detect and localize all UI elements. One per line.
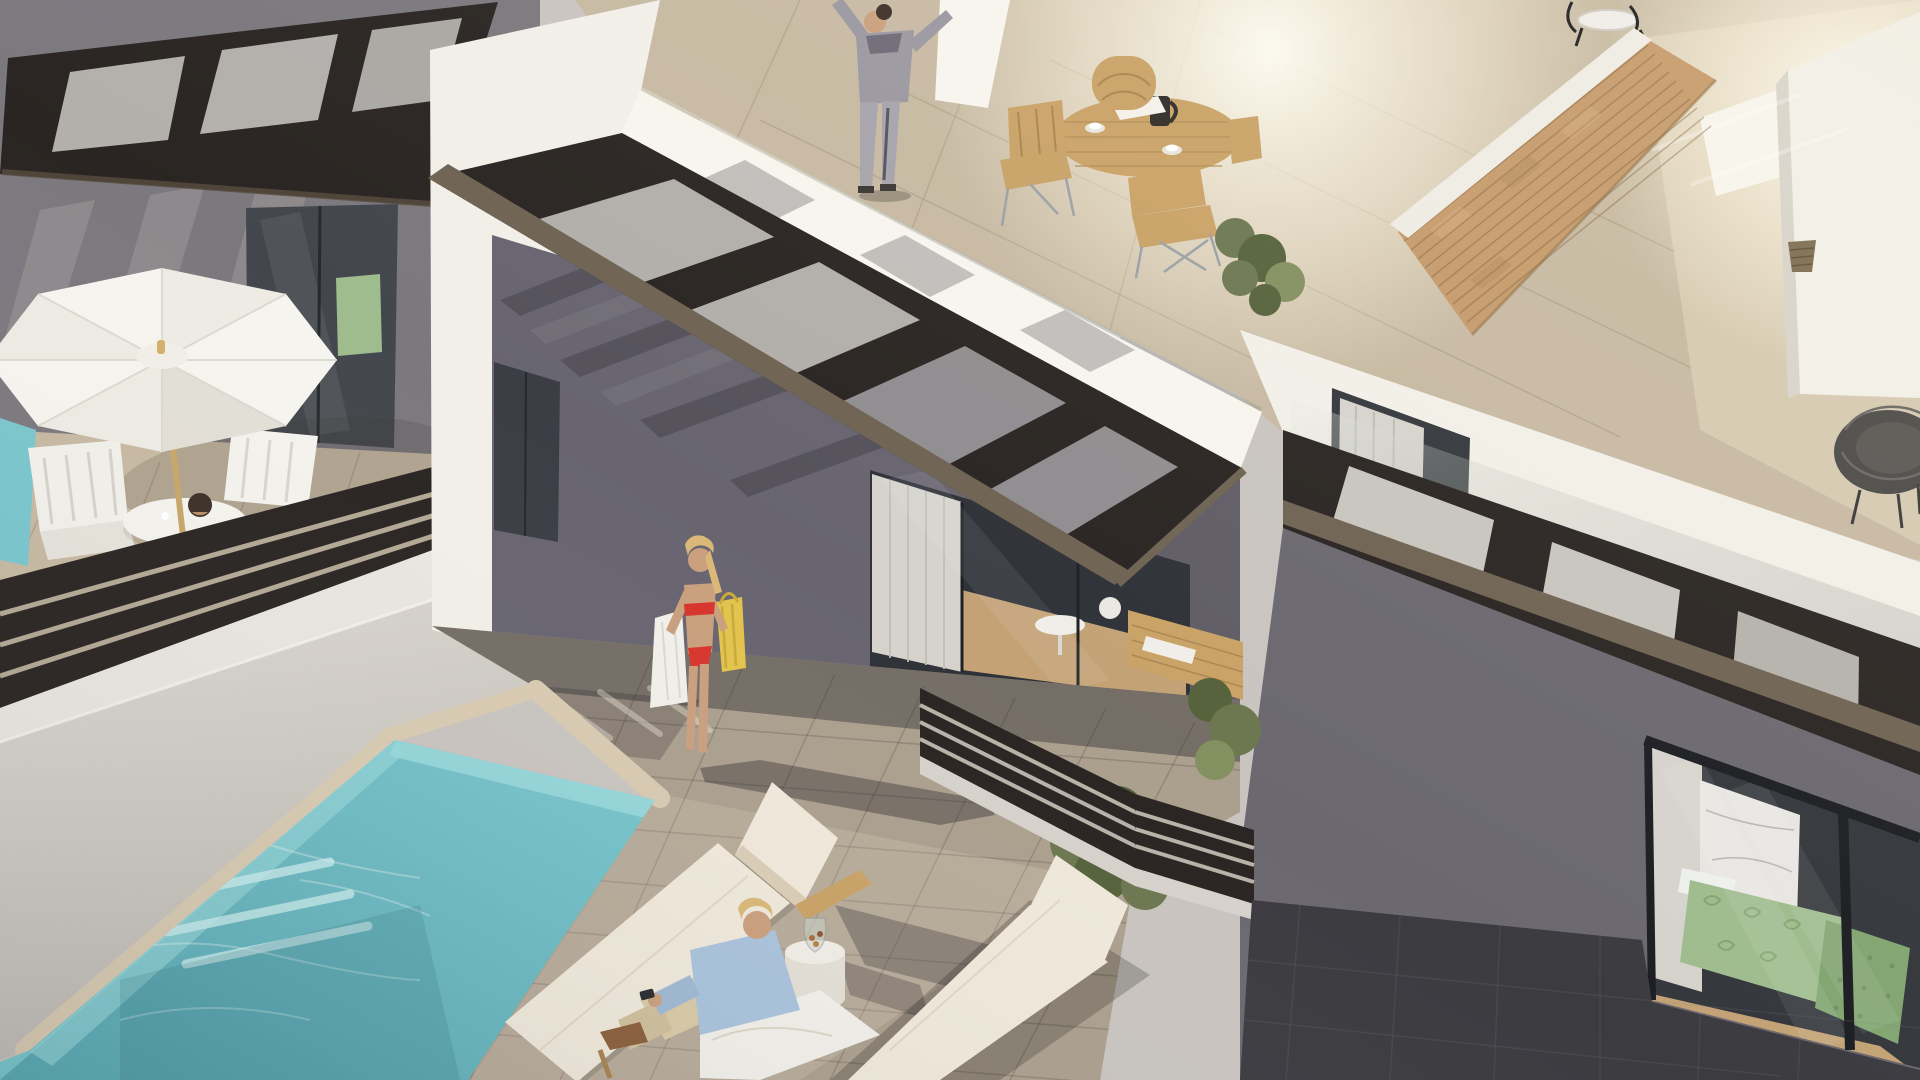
architectural-render (0, 0, 1920, 1080)
color-grade-overlay (0, 0, 1920, 1080)
scene-render (0, 0, 1920, 1080)
